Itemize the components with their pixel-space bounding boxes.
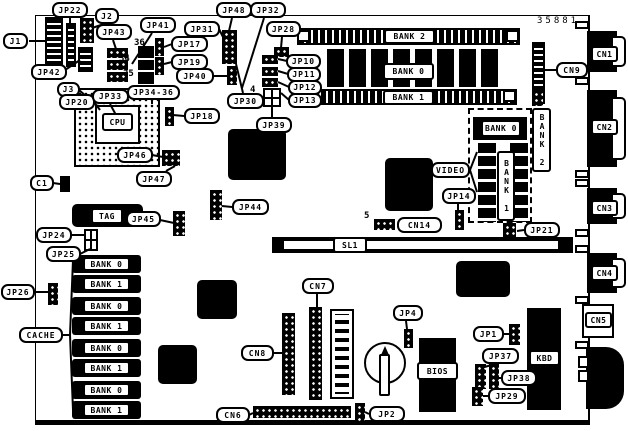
leader-line-28 <box>470 152 477 170</box>
label-jp38: JP38 <box>501 370 537 386</box>
cn1-label: CN1 <box>591 46 618 62</box>
cpu-label: CPU <box>102 113 133 131</box>
leader-line-46 <box>481 364 495 368</box>
pin-34: 34 <box>119 54 130 64</box>
label-jp22: JP22 <box>52 2 88 18</box>
pin-4: 4 <box>250 85 255 95</box>
label-jp2: JP2 <box>369 406 405 422</box>
kbd-label: KBD <box>529 350 560 366</box>
video-bank2-label: BANK 2 <box>532 108 551 172</box>
tag-label: TAG <box>91 208 123 224</box>
leader-line-26 <box>53 183 60 184</box>
leader-line-23 <box>173 115 184 116</box>
label-jp14: JP14 <box>442 188 476 204</box>
label-jp47: JP47 <box>136 171 172 187</box>
leader-line-15 <box>242 18 264 88</box>
pin-36: 36 <box>134 38 145 48</box>
cache-bank-label-8: BANK 1 <box>83 403 130 417</box>
cache-bank-label-3: BANK 0 <box>83 299 130 313</box>
label-cn7: CN7 <box>302 278 334 294</box>
video-bank1-label: BANK 1 <box>497 151 515 221</box>
label-jp37: JP37 <box>482 348 519 364</box>
label-jp4: JP4 <box>393 305 423 321</box>
leader-line-16 <box>281 37 282 48</box>
bank0-dram-label: BANK 0 <box>383 63 434 80</box>
sl1-label: SL1 <box>333 237 367 253</box>
label-c1: C1 <box>30 175 54 191</box>
leader-line-33 <box>222 206 232 207</box>
cache-bank-label-4: BANK 1 <box>83 319 130 333</box>
label-cn6: CN6 <box>216 407 250 423</box>
label-jp18: JP18 <box>184 108 220 124</box>
label-cn8: CN8 <box>241 345 274 361</box>
label-jp34-36: JP34-36 <box>127 85 180 100</box>
leader-line-44 <box>406 321 407 329</box>
pin-5: 5 <box>364 211 369 221</box>
leader-line-24 <box>152 155 163 157</box>
leader-line-39 <box>70 335 73 410</box>
pin-35: 35 <box>123 69 134 79</box>
cache-bank-label-2: BANK 1 <box>83 277 130 291</box>
label-cn9: CN9 <box>556 62 588 78</box>
label-jp39: JP39 <box>256 117 292 133</box>
label-jp24: JP24 <box>36 227 72 243</box>
cache-bank-label-6: BANK 1 <box>83 361 130 375</box>
label-jp1: JP1 <box>473 326 504 342</box>
label-j1: J1 <box>3 33 28 49</box>
label-jp46: JP46 <box>117 147 153 163</box>
label-jp21: JP21 <box>524 222 560 238</box>
label-jp43: JP43 <box>96 24 132 40</box>
label-jp26: JP26 <box>1 284 35 300</box>
label-cn14: CN14 <box>397 217 442 233</box>
label-jp13: JP13 <box>288 93 322 108</box>
label-video: VIDEO <box>431 162 470 178</box>
leader-line-35 <box>80 249 90 254</box>
label-jp31: JP31 <box>184 21 220 37</box>
label-jp44: JP44 <box>232 199 269 215</box>
leader-line-38 <box>70 260 73 335</box>
cache-bank-label-7: BANK 0 <box>83 383 130 397</box>
part-number: 35881 <box>537 16 579 26</box>
motherboard-layout-diagram: 35881 BANK 2BANK 0BANK 1BANK 0BANK 1BANK… <box>0 0 628 431</box>
label-jp29: JP29 <box>488 388 526 404</box>
label-jp33: JP33 <box>92 89 129 104</box>
label-jp25: JP25 <box>46 246 81 262</box>
leader-line-14 <box>229 18 232 31</box>
label-jp41: JP41 <box>140 17 176 33</box>
label-jp42: JP42 <box>31 64 67 80</box>
cn4-label: CN4 <box>591 265 618 281</box>
label-cache: CACHE <box>19 327 63 343</box>
leader-line-32 <box>160 220 174 223</box>
leader-line-31 <box>517 230 524 231</box>
label-jp40: JP40 <box>176 68 214 84</box>
label-jp30: JP30 <box>227 93 264 109</box>
cache-bank-label-1: BANK 0 <box>83 257 130 271</box>
label-jp17: JP17 <box>171 36 208 52</box>
label-jp45: JP45 <box>126 211 161 227</box>
leader-line-17 <box>236 64 243 93</box>
leader-line-25 <box>166 166 175 171</box>
bank2-dimm-label: BANK 2 <box>384 29 435 44</box>
cn3-label: CN3 <box>591 200 618 216</box>
cache-bank-label-5: BANK 0 <box>83 341 130 355</box>
bank1-dimm-label: BANK 1 <box>383 90 434 105</box>
label-j2: J2 <box>95 8 119 24</box>
bios-label: BIOS <box>417 362 458 380</box>
label-jp32: JP32 <box>250 2 286 18</box>
leader-line-8 <box>113 40 116 49</box>
label-jp20: JP20 <box>59 94 95 110</box>
cn2-label: CN2 <box>591 119 618 135</box>
video-bank0-label: BANK 0 <box>481 120 521 137</box>
label-jp48: JP48 <box>216 2 252 18</box>
cn5-label: CN5 <box>585 312 612 328</box>
label-jp28: JP28 <box>266 21 301 37</box>
